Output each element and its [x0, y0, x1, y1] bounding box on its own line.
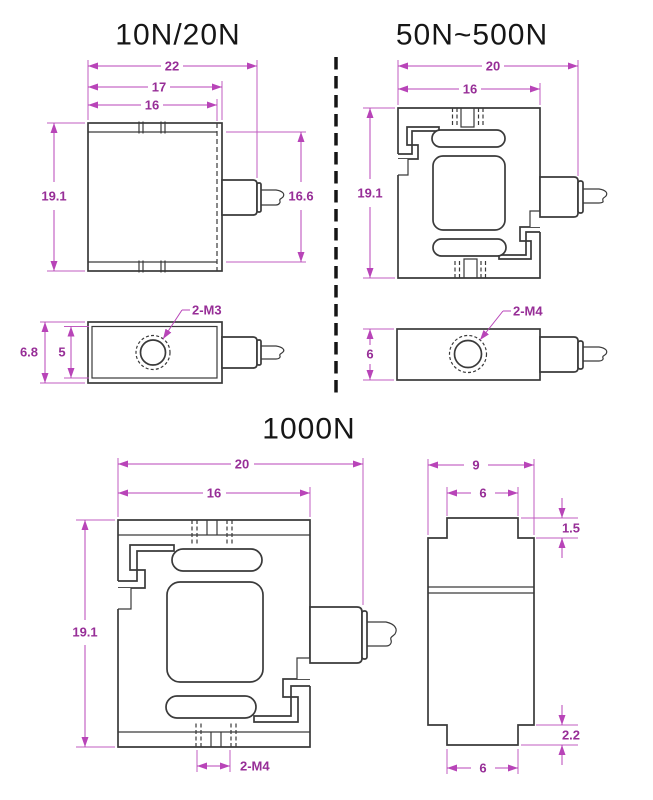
dim-height-16-6: 16.6 [288, 189, 313, 204]
dim-width-16: 16 [463, 82, 477, 97]
drawing-canvas: 10N/20N [0, 0, 653, 800]
dim-width-20: 20 [486, 59, 500, 74]
dim-height-6: 6 [366, 347, 373, 362]
dim-boss-1-5: 1.5 [562, 521, 580, 536]
cable-connector [540, 177, 607, 217]
front-view-1000n: 20 16 19.1 2-M4 [72, 457, 396, 774]
dimensions-side-c: 9 6 1.5 2.2 6 [428, 458, 580, 776]
dim-height-6-8: 6.8 [20, 345, 38, 360]
thread-label-2-m4: 2-M4 [513, 304, 543, 319]
dim-height-19-1: 19.1 [72, 625, 97, 640]
thread-label-2-m3: 2-M3 [192, 303, 222, 318]
side-view-50n-500n: 6 2-M4 [363, 304, 607, 381]
dim-width-9: 9 [472, 458, 479, 473]
thread-label-2-m4: 2-M4 [240, 759, 270, 774]
dim-width-16: 16 [145, 98, 159, 113]
elastomer-pad [167, 582, 263, 682]
dim-boss-2-2: 2.2 [562, 728, 580, 743]
title-10n-20n: 10N/20N [115, 19, 240, 52]
dim-width-22: 22 [165, 59, 179, 74]
section-50n-500n: 50N~500N 20 [357, 19, 606, 381]
cable-connector [222, 337, 284, 368]
dim-width-6-top: 6 [479, 486, 486, 501]
dim-width-20: 20 [235, 457, 249, 472]
dim-width-6-bottom: 6 [479, 761, 486, 776]
front-view-10n-20n: 22 17 16 19.1 16.6 [41, 59, 313, 273]
section-1000n: 1000N 20 [72, 413, 580, 776]
front-view-50n-500n: 20 16 19.1 [357, 59, 606, 279]
cable-connector [310, 607, 396, 663]
section-10n-20n: 10N/20N [20, 19, 314, 384]
elastomer-pad [433, 156, 505, 230]
title-1000n: 1000N [262, 413, 355, 446]
cable-connector [222, 180, 284, 215]
dim-width-16: 16 [207, 486, 221, 501]
side-view-10n-20n: 6.8 5 2-M3 [20, 303, 284, 384]
cable-connector [540, 337, 607, 372]
technical-drawing: 10N/20N [0, 0, 653, 800]
dim-height-19-1: 19.1 [357, 186, 382, 201]
dim-width-17: 17 [152, 80, 166, 95]
dim-height-5: 5 [58, 345, 65, 360]
dim-height-19-1: 19.1 [41, 189, 66, 204]
side-view-1000n: 9 6 1.5 2.2 6 [428, 458, 580, 776]
title-50n-500n: 50N~500N [396, 19, 548, 52]
